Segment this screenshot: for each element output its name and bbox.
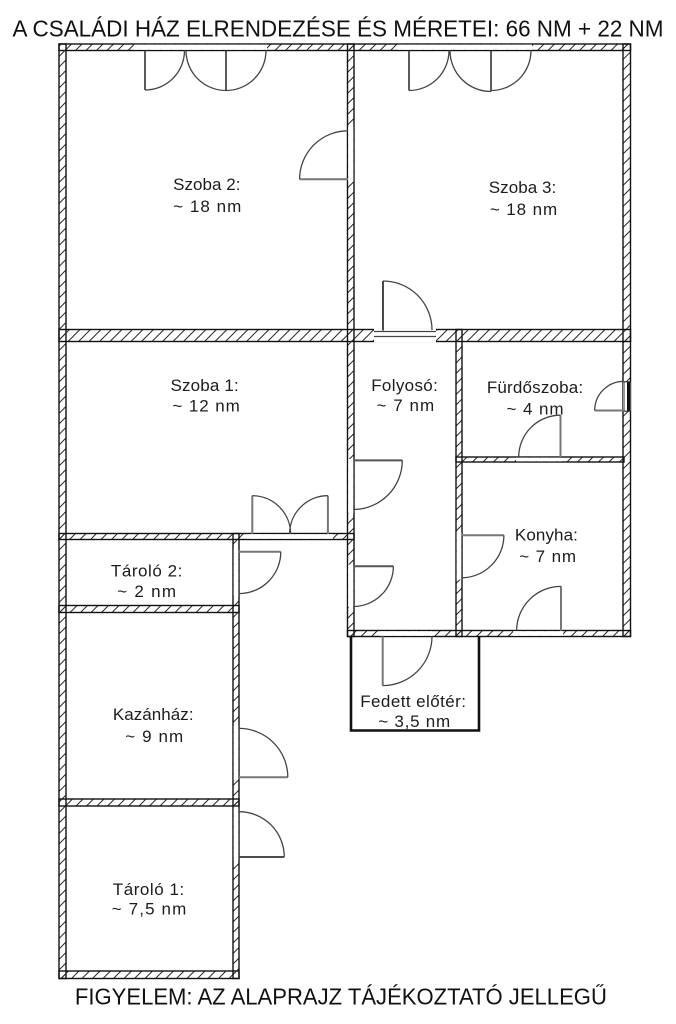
svg-text:~ 12 nm: ~ 12 nm <box>172 397 239 416</box>
svg-text:~ 4 nm: ~ 4 nm <box>507 400 564 419</box>
svg-text:Fedett előtér:: Fedett előtér: <box>360 692 466 711</box>
svg-text:FIGYELEM: AZ ALAPRAJZ TÁJÉKOZT: FIGYELEM: AZ ALAPRAJZ TÁJÉKOZTATÓ JELLEG… <box>75 983 607 1009</box>
svg-text:~ 3,5 nm: ~ 3,5 nm <box>378 712 450 731</box>
svg-text:Szoba 1:: Szoba 1: <box>170 376 238 395</box>
svg-text:Folyosó:: Folyosó: <box>371 376 438 395</box>
svg-text:~ 2 nm: ~ 2 nm <box>117 582 176 601</box>
svg-text:Tároló 2:: Tároló 2: <box>111 561 182 580</box>
svg-text:Kazánház:: Kazánház: <box>113 705 194 724</box>
svg-text:~ 18 nm: ~ 18 nm <box>490 200 557 219</box>
svg-text:A CSALÁDI HÁZ ELRENDEZÉSE ÉS M: A CSALÁDI HÁZ ELRENDEZÉSE ÉS MÉRETEI: 66… <box>13 16 664 42</box>
svg-text:~ 9 nm: ~ 9 nm <box>125 727 183 746</box>
svg-text:Szoba 3:: Szoba 3: <box>489 178 556 197</box>
svg-text:Fürdőszoba:: Fürdőszoba: <box>487 378 583 397</box>
svg-text:~ 7 nm: ~ 7 nm <box>519 547 576 566</box>
svg-text:~ 7 nm: ~ 7 nm <box>376 396 434 415</box>
svg-text:Konyha:: Konyha: <box>515 526 578 545</box>
svg-text:~ 18 nm: ~ 18 nm <box>173 197 241 216</box>
svg-text:~ 7,5 nm: ~ 7,5 nm <box>112 900 187 919</box>
svg-text:Tároló 1:: Tároló 1: <box>113 880 184 899</box>
svg-text:Szoba 2:: Szoba 2: <box>173 175 240 194</box>
